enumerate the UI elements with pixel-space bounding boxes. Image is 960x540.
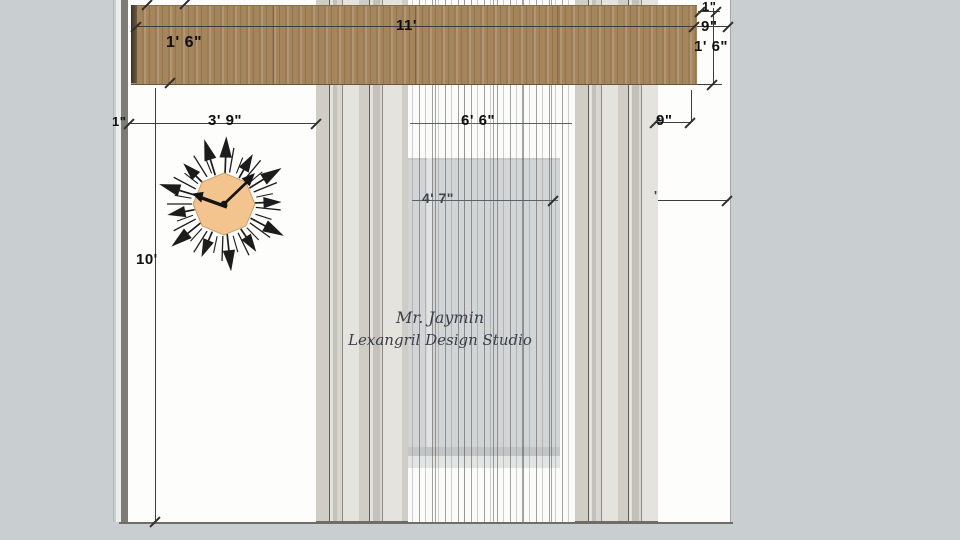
dim-label-window-height: 4' 7" bbox=[422, 190, 454, 206]
dim-label-gap-left: 1" bbox=[112, 114, 126, 129]
dim-line-wall-height-vertical bbox=[155, 88, 156, 521]
wall-left-edge bbox=[121, 0, 128, 522]
dim-label-wall-height: 10' bbox=[136, 251, 158, 268]
elevation-canvas: 11' 1' 6" 1" 9" 1' 6" 1" 3' 9" 6' 6" 9" … bbox=[0, 0, 960, 540]
dim-line-window-height-ext bbox=[658, 200, 729, 201]
floor-line bbox=[119, 522, 733, 524]
dim-label-offset-right: 9" bbox=[656, 112, 672, 129]
dim-label-beam-width: 11' bbox=[396, 17, 417, 34]
wall-left-guide-line bbox=[113, 0, 114, 522]
watermark-line1: Mr. Jaymin bbox=[325, 308, 555, 327]
valance-beam-left-edge bbox=[131, 5, 137, 83]
watermark-line2: Lexangril Design Studio bbox=[325, 331, 555, 349]
dim-label-offset-top-right: 9" bbox=[701, 18, 717, 35]
dim-line-right-vertical bbox=[691, 90, 692, 122]
wall-right-edge bbox=[730, 0, 731, 522]
dim-label-gap-top-right: 1" bbox=[702, 0, 716, 14]
starburst-clock bbox=[149, 129, 299, 279]
dim-label-clock-offset: 3' 9" bbox=[208, 112, 242, 129]
dim-label-partial: ' bbox=[654, 188, 658, 203]
dim-label-window-width: 6' 6" bbox=[461, 112, 495, 129]
dim-label-beam-thickness: 1' 6" bbox=[166, 34, 202, 52]
dim-label-beam-height-right: 1' 6" bbox=[694, 38, 728, 55]
